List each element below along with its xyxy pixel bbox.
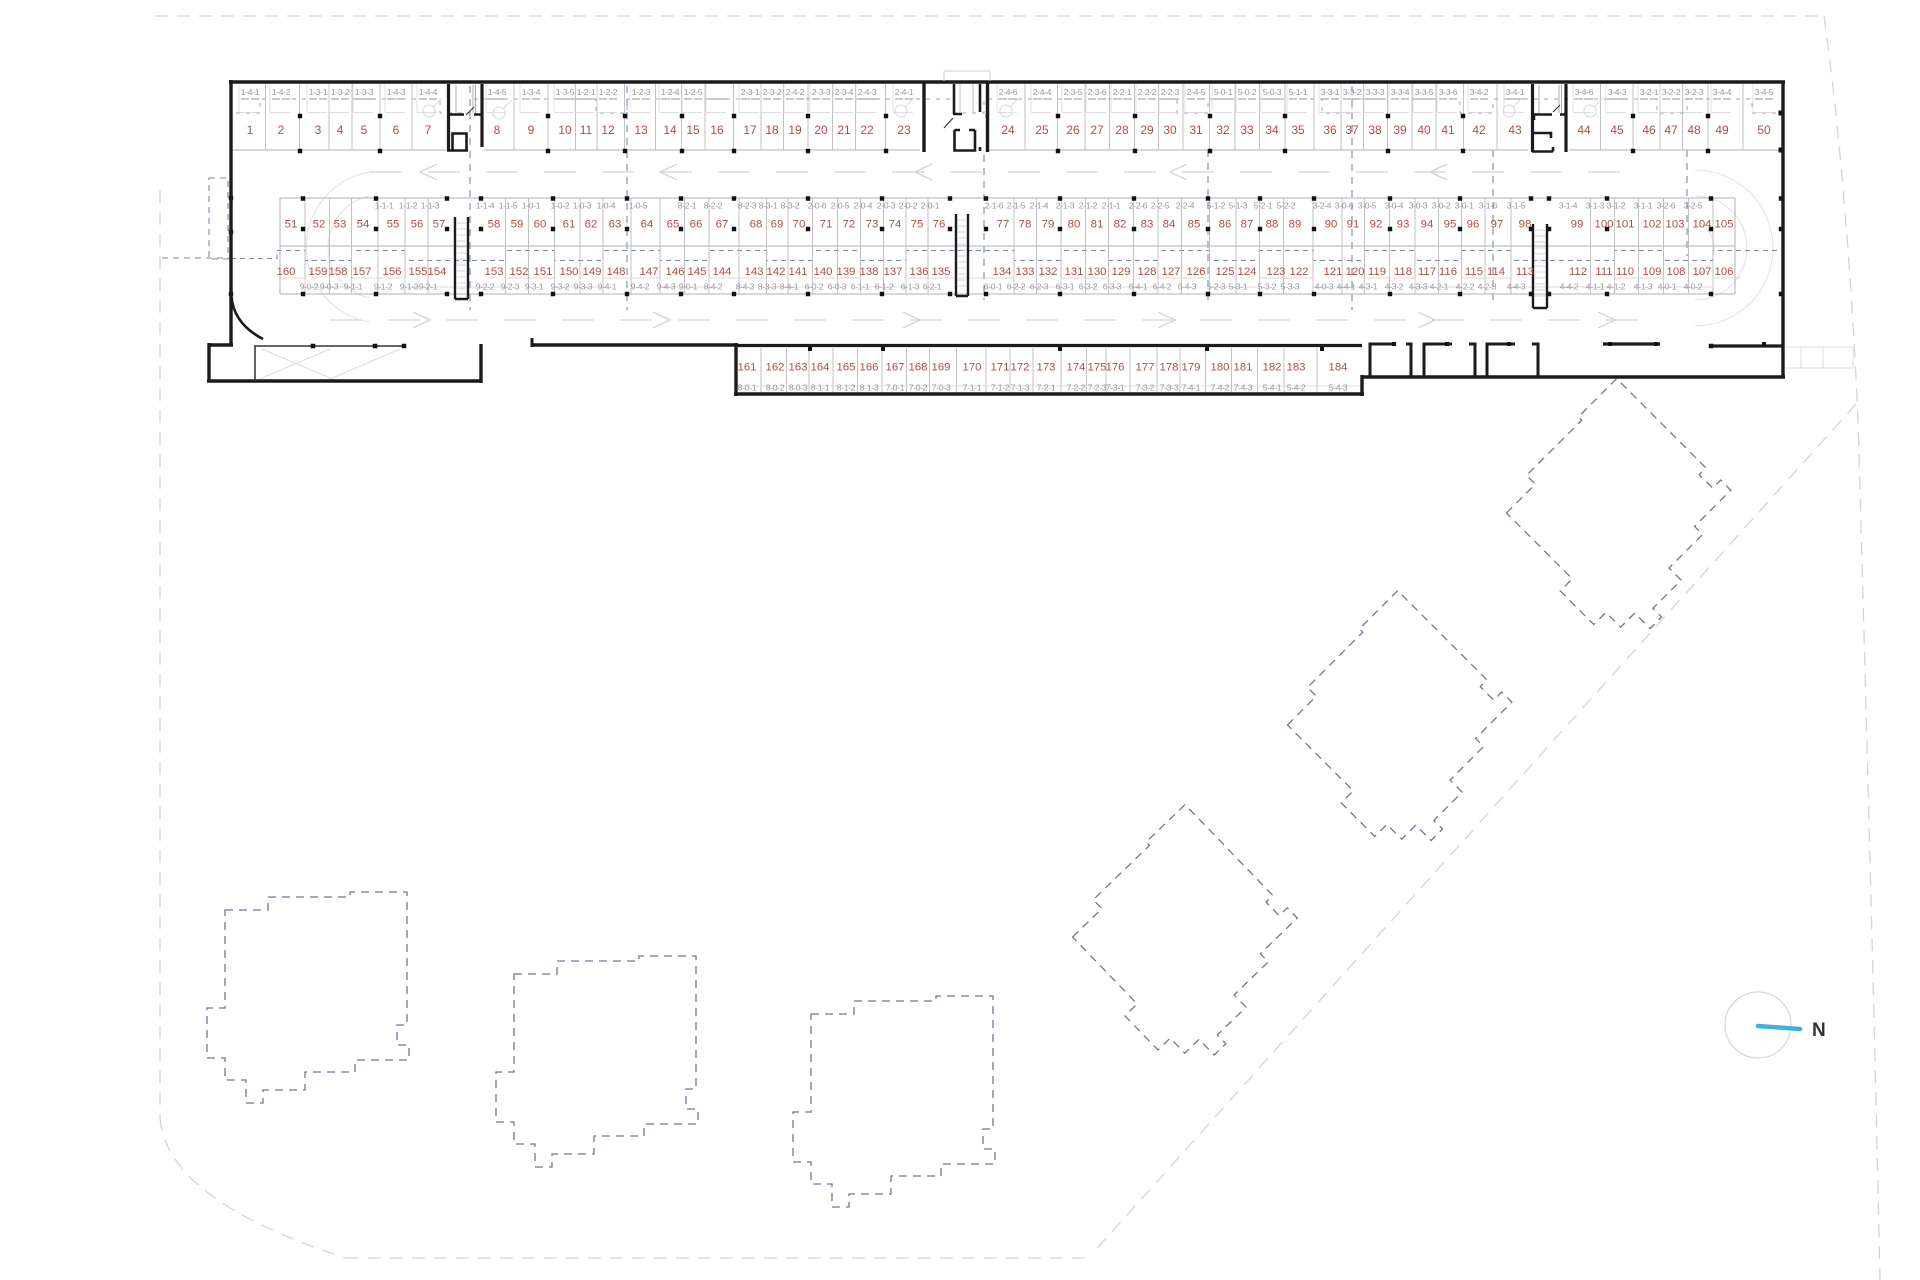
svg-text:2-3-4: 2-3-4 <box>835 87 854 97</box>
svg-text:4-3-2: 4-3-2 <box>1385 282 1404 292</box>
svg-text:49: 49 <box>1715 123 1729 137</box>
svg-text:9-1-3: 9-1-3 <box>400 282 419 292</box>
svg-text:4-1-2: 4-1-2 <box>1607 282 1626 292</box>
svg-text:132: 132 <box>1038 266 1057 278</box>
svg-text:7-1-1: 7-1-1 <box>963 383 982 393</box>
svg-text:15: 15 <box>686 123 700 137</box>
svg-text:3-1-3: 3-1-3 <box>1586 201 1605 211</box>
svg-text:129: 129 <box>1111 266 1130 278</box>
svg-text:3-2-5: 3-2-5 <box>1684 201 1703 211</box>
svg-text:1-0-5: 1-0-5 <box>629 201 648 211</box>
svg-text:2-3-1: 2-3-1 <box>741 87 760 97</box>
svg-text:6-0-3: 6-0-3 <box>828 282 847 292</box>
svg-text:8-2-2: 8-2-2 <box>704 201 723 211</box>
svg-text:37: 37 <box>1345 123 1359 137</box>
svg-text:8: 8 <box>494 123 501 137</box>
svg-text:19: 19 <box>788 123 802 137</box>
svg-text:1: 1 <box>247 123 254 137</box>
svg-text:152: 152 <box>509 266 528 278</box>
svg-text:7-2-2: 7-2-2 <box>1067 383 1086 393</box>
svg-text:1-1-2: 1-1-2 <box>399 201 418 211</box>
svg-text:125: 125 <box>1215 266 1234 278</box>
svg-text:1-4-3: 1-4-3 <box>387 87 406 97</box>
svg-text:141: 141 <box>788 266 807 278</box>
svg-text:123: 123 <box>1266 266 1285 278</box>
svg-text:2-1-5: 2-1-5 <box>1007 201 1026 211</box>
svg-text:2-0-6: 2-0-6 <box>808 201 827 211</box>
svg-text:4-0-3: 4-0-3 <box>1315 282 1334 292</box>
svg-text:59: 59 <box>511 218 524 230</box>
svg-text:2-0-2: 2-0-2 <box>899 201 918 211</box>
svg-text:81: 81 <box>1091 218 1104 230</box>
svg-text:2-2-2: 2-2-2 <box>1138 87 1157 97</box>
svg-text:61: 61 <box>563 218 576 230</box>
svg-text:3-2-1: 3-2-1 <box>1640 87 1659 97</box>
svg-text:62: 62 <box>585 218 598 230</box>
svg-text:105: 105 <box>1714 218 1733 230</box>
svg-text:100: 100 <box>1594 218 1613 230</box>
svg-text:1-2-4: 1-2-4 <box>661 87 680 97</box>
svg-text:5-2-1: 5-2-1 <box>1254 201 1273 211</box>
svg-text:117: 117 <box>1418 266 1436 278</box>
svg-text:7-3-3: 7-3-3 <box>1160 383 1179 393</box>
svg-text:23: 23 <box>897 123 911 137</box>
svg-text:56: 56 <box>411 218 424 230</box>
svg-text:124: 124 <box>1237 266 1256 278</box>
svg-text:16: 16 <box>710 123 724 137</box>
svg-text:1-3-3: 1-3-3 <box>355 87 374 97</box>
svg-text:8-0-3: 8-0-3 <box>789 383 808 393</box>
svg-text:153: 153 <box>484 266 503 278</box>
svg-text:110: 110 <box>1616 266 1634 278</box>
svg-text:4-4-1: 4-4-1 <box>1337 282 1356 292</box>
svg-text:7-2-1: 7-2-1 <box>1037 383 1056 393</box>
svg-text:22: 22 <box>860 123 874 137</box>
svg-text:3-3-5: 3-3-5 <box>1415 87 1434 97</box>
svg-text:8-0-1: 8-0-1 <box>738 383 757 393</box>
svg-text:45: 45 <box>1610 123 1624 137</box>
svg-text:57: 57 <box>433 218 446 230</box>
svg-text:181: 181 <box>1233 362 1252 374</box>
svg-text:115: 115 <box>1465 266 1483 278</box>
svg-text:139: 139 <box>836 266 855 278</box>
svg-text:170: 170 <box>962 362 981 374</box>
svg-text:3-2-2: 3-2-2 <box>1662 87 1681 97</box>
svg-text:128: 128 <box>1137 266 1156 278</box>
svg-text:36: 36 <box>1323 123 1337 137</box>
svg-text:158: 158 <box>328 266 347 278</box>
svg-text:182: 182 <box>1262 362 1281 374</box>
svg-text:143: 143 <box>744 266 763 278</box>
svg-text:38: 38 <box>1368 123 1382 137</box>
svg-text:109: 109 <box>1642 266 1661 278</box>
svg-text:94: 94 <box>1421 218 1434 230</box>
svg-text:9-2-3: 9-2-3 <box>501 282 520 292</box>
svg-text:1-1-3: 1-1-3 <box>421 201 440 211</box>
svg-text:3-3-1: 3-3-1 <box>1321 87 1340 97</box>
svg-text:2-4-2: 2-4-2 <box>786 87 805 97</box>
svg-text:6-1-3: 6-1-3 <box>901 282 920 292</box>
svg-text:122: 122 <box>1289 266 1308 278</box>
svg-text:24: 24 <box>1001 123 1015 137</box>
svg-text:5-0-2: 5-0-2 <box>1238 87 1257 97</box>
svg-text:114: 114 <box>1487 266 1505 278</box>
svg-text:3-0-5: 3-0-5 <box>1358 201 1377 211</box>
svg-text:9-3-1: 9-3-1 <box>525 282 544 292</box>
svg-text:7: 7 <box>425 123 432 137</box>
svg-text:2-1-1: 2-1-1 <box>1102 201 1121 211</box>
svg-text:77: 77 <box>997 218 1010 230</box>
svg-text:68: 68 <box>750 218 763 230</box>
svg-text:134: 134 <box>992 266 1011 278</box>
svg-text:82: 82 <box>1114 218 1127 230</box>
svg-text:1-4-1: 1-4-1 <box>241 87 260 97</box>
svg-text:42: 42 <box>1472 123 1486 137</box>
svg-text:2-1-4: 2-1-4 <box>1030 201 1049 211</box>
svg-text:164: 164 <box>810 362 829 374</box>
svg-text:1-2-2: 1-2-2 <box>599 87 618 97</box>
svg-text:60: 60 <box>534 218 547 230</box>
svg-text:5-0-1: 5-0-1 <box>1214 87 1233 97</box>
svg-text:5-2-2: 5-2-2 <box>1277 201 1296 211</box>
svg-text:101: 101 <box>1615 218 1634 230</box>
svg-text:85: 85 <box>1188 218 1201 230</box>
svg-text:119: 119 <box>1368 266 1386 278</box>
svg-text:83: 83 <box>1141 218 1154 230</box>
svg-text:90: 90 <box>1325 218 1338 230</box>
svg-text:163: 163 <box>788 362 807 374</box>
svg-text:20: 20 <box>814 123 828 137</box>
svg-text:6-2-2: 6-2-2 <box>1007 282 1026 292</box>
svg-text:9-3-2: 9-3-2 <box>551 282 570 292</box>
svg-text:2-1-6: 2-1-6 <box>985 201 1004 211</box>
svg-text:92: 92 <box>1370 218 1383 230</box>
svg-text:1-2-5: 1-2-5 <box>684 87 703 97</box>
svg-text:5-4-3: 5-4-3 <box>1329 383 1348 393</box>
svg-text:147: 147 <box>639 266 658 278</box>
svg-text:140: 140 <box>813 266 832 278</box>
svg-text:159: 159 <box>308 266 327 278</box>
svg-text:74: 74 <box>889 218 902 230</box>
svg-text:4-4-2: 4-4-2 <box>1560 282 1579 292</box>
svg-text:2-1-3: 2-1-3 <box>1056 201 1075 211</box>
svg-text:2-4-5: 2-4-5 <box>1187 87 1206 97</box>
svg-text:91: 91 <box>1347 218 1360 230</box>
svg-text:87: 87 <box>1241 218 1254 230</box>
svg-text:9-4-2: 9-4-2 <box>631 282 650 292</box>
svg-text:145: 145 <box>687 266 706 278</box>
svg-text:26: 26 <box>1066 123 1080 137</box>
svg-text:1-3-1: 1-3-1 <box>309 87 328 97</box>
svg-text:47: 47 <box>1664 123 1678 137</box>
svg-text:99: 99 <box>1571 218 1584 230</box>
svg-text:93: 93 <box>1397 218 1410 230</box>
svg-text:102: 102 <box>1642 218 1661 230</box>
svg-text:131: 131 <box>1064 266 1083 278</box>
svg-text:106: 106 <box>1714 266 1733 278</box>
svg-text:3-0-1: 3-0-1 <box>1455 201 1474 211</box>
svg-text:70: 70 <box>793 218 806 230</box>
svg-text:173: 173 <box>1036 362 1055 374</box>
svg-text:183: 183 <box>1286 362 1305 374</box>
svg-text:113: 113 <box>1516 266 1534 278</box>
svg-text:3-0-4: 3-0-4 <box>1385 201 1404 211</box>
svg-text:4-1-1: 4-1-1 <box>1586 282 1605 292</box>
svg-text:5-1-2: 5-1-2 <box>1207 201 1226 211</box>
svg-text:48: 48 <box>1687 123 1701 137</box>
svg-text:95: 95 <box>1444 218 1457 230</box>
svg-text:171: 171 <box>990 362 1009 374</box>
svg-text:17: 17 <box>743 123 757 137</box>
svg-text:180: 180 <box>1210 362 1229 374</box>
svg-text:4-1-3: 4-1-3 <box>1634 282 1653 292</box>
svg-text:7-1-3: 7-1-3 <box>1011 383 1030 393</box>
svg-text:1-4-5: 1-4-5 <box>488 87 507 97</box>
svg-text:162: 162 <box>765 362 784 374</box>
svg-text:9-2-1: 9-2-1 <box>419 282 438 292</box>
svg-text:112: 112 <box>1569 266 1587 278</box>
svg-text:6-4-3: 6-4-3 <box>1178 282 1197 292</box>
svg-text:118: 118 <box>1394 266 1412 278</box>
svg-text:3-4-3: 3-4-3 <box>1608 87 1627 97</box>
svg-text:27: 27 <box>1090 123 1104 137</box>
svg-text:130: 130 <box>1087 266 1106 278</box>
svg-text:2-2-6: 2-2-6 <box>1129 201 1148 211</box>
svg-text:7-4-3: 7-4-3 <box>1234 383 1253 393</box>
svg-text:N: N <box>1812 1020 1826 1041</box>
svg-text:58: 58 <box>488 218 501 230</box>
svg-text:2-3-6: 2-3-6 <box>1088 87 1107 97</box>
svg-text:2-2-4: 2-2-4 <box>1176 201 1195 211</box>
svg-text:7-0-2: 7-0-2 <box>909 383 928 393</box>
svg-text:1-1-5: 1-1-5 <box>499 201 518 211</box>
svg-text:50: 50 <box>1757 123 1771 137</box>
svg-text:25: 25 <box>1035 123 1049 137</box>
svg-text:72: 72 <box>843 218 856 230</box>
svg-text:69: 69 <box>771 218 784 230</box>
svg-text:2: 2 <box>278 123 285 137</box>
svg-text:8-1-2: 8-1-2 <box>837 383 856 393</box>
svg-text:9: 9 <box>528 123 535 137</box>
svg-text:175: 175 <box>1087 362 1106 374</box>
svg-text:4-4-3: 4-4-3 <box>1507 282 1526 292</box>
svg-text:4-2-3: 4-2-3 <box>1478 282 1497 292</box>
svg-text:3-3-6: 3-3-6 <box>1439 87 1458 97</box>
svg-text:169: 169 <box>931 362 950 374</box>
svg-text:8-1-3: 8-1-3 <box>860 383 879 393</box>
svg-text:6-4-1: 6-4-1 <box>1129 282 1148 292</box>
svg-text:2-3-2: 2-3-2 <box>763 87 782 97</box>
svg-text:1-0-3: 1-0-3 <box>573 201 592 211</box>
svg-text:7-1-2: 7-1-2 <box>991 383 1010 393</box>
svg-text:3-0-2: 3-0-2 <box>1432 201 1451 211</box>
svg-text:3-3-2: 3-3-2 <box>1343 87 1362 97</box>
svg-text:165: 165 <box>836 362 855 374</box>
svg-text:4-2-1: 4-2-1 <box>1430 282 1449 292</box>
svg-text:79: 79 <box>1042 218 1055 230</box>
svg-text:35: 35 <box>1291 123 1305 137</box>
svg-text:13: 13 <box>634 123 648 137</box>
svg-text:14: 14 <box>663 123 677 137</box>
svg-text:7-0-1: 7-0-1 <box>886 383 905 393</box>
svg-text:3-4-5: 3-4-5 <box>1755 87 1774 97</box>
svg-text:3-3-4: 3-3-4 <box>1391 87 1410 97</box>
svg-text:2-1-2: 2-1-2 <box>1079 201 1098 211</box>
svg-text:6-2-3: 6-2-3 <box>1030 282 1049 292</box>
svg-text:9-2-2: 9-2-2 <box>476 282 495 292</box>
svg-text:160: 160 <box>276 266 295 278</box>
svg-text:116: 116 <box>1439 266 1457 278</box>
svg-text:3: 3 <box>315 123 322 137</box>
svg-text:2-4-1: 2-4-1 <box>895 87 914 97</box>
svg-text:9-0-3: 9-0-3 <box>320 282 339 292</box>
svg-text:55: 55 <box>387 218 400 230</box>
svg-text:3-3-3: 3-3-3 <box>1366 87 1385 97</box>
svg-text:30: 30 <box>1163 123 1177 137</box>
svg-text:2-0-3: 2-0-3 <box>877 201 896 211</box>
svg-text:8-2-1: 8-2-1 <box>678 201 697 211</box>
svg-text:76: 76 <box>933 218 946 230</box>
svg-text:1-3-4: 1-3-4 <box>522 87 541 97</box>
svg-text:1-2-1: 1-2-1 <box>577 87 596 97</box>
svg-text:5-4-1: 5-4-1 <box>1263 383 1282 393</box>
svg-text:33: 33 <box>1240 123 1254 137</box>
svg-text:174: 174 <box>1066 362 1085 374</box>
svg-text:172: 172 <box>1010 362 1029 374</box>
svg-text:4-0-1: 4-0-1 <box>1658 282 1677 292</box>
svg-text:4: 4 <box>337 123 344 137</box>
svg-text:8-4-1: 8-4-1 <box>780 282 799 292</box>
svg-text:1-0-2: 1-0-2 <box>551 201 570 211</box>
svg-text:44: 44 <box>1577 123 1591 137</box>
svg-text:126: 126 <box>1186 266 1205 278</box>
svg-text:1-3-5: 1-3-5 <box>556 87 575 97</box>
svg-text:6-3-1: 6-3-1 <box>1056 282 1075 292</box>
svg-text:80: 80 <box>1068 218 1081 230</box>
svg-text:3-1-1: 3-1-1 <box>1634 201 1653 211</box>
svg-text:66: 66 <box>690 218 703 230</box>
svg-text:4-2-2: 4-2-2 <box>1456 282 1475 292</box>
svg-text:8-4-2: 8-4-2 <box>704 282 723 292</box>
svg-text:1-4-2: 1-4-2 <box>272 87 291 97</box>
svg-text:65: 65 <box>667 218 680 230</box>
svg-text:2-0-1: 2-0-1 <box>921 201 940 211</box>
svg-text:9-1-1: 9-1-1 <box>344 282 363 292</box>
svg-text:2-0-4: 2-0-4 <box>854 201 873 211</box>
svg-text:96: 96 <box>1467 218 1480 230</box>
svg-text:6-3-3: 6-3-3 <box>1103 282 1122 292</box>
svg-text:9-3-3: 9-3-3 <box>574 282 593 292</box>
svg-text:2-2-3: 2-2-3 <box>1161 87 1180 97</box>
svg-text:39: 39 <box>1393 123 1407 137</box>
svg-text:3-4-1: 3-4-1 <box>1506 87 1525 97</box>
svg-text:75: 75 <box>911 218 924 230</box>
svg-text:6-1-1: 6-1-1 <box>851 282 870 292</box>
svg-text:7-3-1: 7-3-1 <box>1106 383 1125 393</box>
svg-text:3-1-4: 3-1-4 <box>1559 201 1578 211</box>
svg-text:135: 135 <box>931 266 950 278</box>
svg-text:142: 142 <box>766 266 785 278</box>
svg-text:3-4-2: 3-4-2 <box>1470 87 1489 97</box>
svg-text:43: 43 <box>1508 123 1522 137</box>
svg-text:6-2-1: 6-2-1 <box>923 282 942 292</box>
svg-text:8-3-2: 8-3-2 <box>781 201 800 211</box>
svg-text:2-4-3: 2-4-3 <box>858 87 877 97</box>
svg-text:104: 104 <box>1692 218 1711 230</box>
svg-text:167: 167 <box>885 362 904 374</box>
svg-text:6: 6 <box>393 123 400 137</box>
svg-text:10: 10 <box>558 123 572 137</box>
svg-text:6-4-2: 6-4-2 <box>1153 282 1172 292</box>
svg-text:137: 137 <box>883 266 902 278</box>
svg-text:1-0-4: 1-0-4 <box>597 201 616 211</box>
svg-text:3-4-6: 3-4-6 <box>1575 87 1594 97</box>
svg-text:3-0-6: 3-0-6 <box>1335 201 1354 211</box>
svg-text:5-3-3: 5-3-3 <box>1281 282 1300 292</box>
svg-text:176: 176 <box>1105 362 1124 374</box>
svg-text:2-2-1: 2-2-1 <box>1113 87 1132 97</box>
svg-text:71: 71 <box>820 218 833 230</box>
svg-text:111: 111 <box>1595 266 1612 278</box>
svg-text:138: 138 <box>859 266 878 278</box>
svg-text:3-1-6: 3-1-6 <box>1479 201 1498 211</box>
svg-text:7-3-2: 7-3-2 <box>1136 383 1155 393</box>
svg-text:8-3-1: 8-3-1 <box>759 201 778 211</box>
svg-text:2-2-5: 2-2-5 <box>1151 201 1170 211</box>
svg-text:51: 51 <box>285 218 298 230</box>
svg-text:1-4-4: 1-4-4 <box>419 87 438 97</box>
svg-text:34: 34 <box>1265 123 1279 137</box>
svg-text:103: 103 <box>1665 218 1684 230</box>
svg-text:151: 151 <box>533 266 552 278</box>
svg-text:78: 78 <box>1019 218 1032 230</box>
svg-text:161: 161 <box>737 362 756 374</box>
svg-text:5: 5 <box>361 123 368 137</box>
svg-text:73: 73 <box>866 218 879 230</box>
svg-text:3-2-3: 3-2-3 <box>1685 87 1704 97</box>
svg-text:53: 53 <box>334 218 347 230</box>
svg-text:133: 133 <box>1015 266 1034 278</box>
svg-text:177: 177 <box>1135 362 1154 374</box>
svg-text:3-2-6: 3-2-6 <box>1657 201 1676 211</box>
svg-text:7-2-3: 7-2-3 <box>1088 383 1107 393</box>
svg-text:5-3-1: 5-3-1 <box>1229 282 1248 292</box>
svg-text:108: 108 <box>1666 266 1685 278</box>
svg-text:7-0-3: 7-0-3 <box>932 383 951 393</box>
svg-text:67: 67 <box>716 218 729 230</box>
svg-text:166: 166 <box>859 362 878 374</box>
svg-text:4-3-3: 4-3-3 <box>1409 282 1428 292</box>
svg-text:21: 21 <box>837 123 851 137</box>
svg-text:1-2-3: 1-2-3 <box>632 87 651 97</box>
svg-text:29: 29 <box>1140 123 1154 137</box>
svg-text:157: 157 <box>352 266 371 278</box>
svg-text:5-1-1: 5-1-1 <box>1289 87 1308 97</box>
svg-text:150: 150 <box>559 266 578 278</box>
svg-text:6-3-2: 6-3-2 <box>1079 282 1098 292</box>
svg-text:9-4-3: 9-4-3 <box>657 282 676 292</box>
svg-text:1-1-1: 1-1-1 <box>375 201 394 211</box>
svg-text:63: 63 <box>609 218 622 230</box>
svg-text:1-1-4: 1-1-4 <box>476 201 495 211</box>
svg-text:144: 144 <box>712 266 731 278</box>
svg-text:4-0-2: 4-0-2 <box>1684 282 1703 292</box>
svg-text:7-4-2: 7-4-2 <box>1211 383 1230 393</box>
svg-text:3-2-4: 3-2-4 <box>1313 201 1332 211</box>
svg-text:46: 46 <box>1642 123 1656 137</box>
svg-text:156: 156 <box>382 266 401 278</box>
svg-text:2-3-3: 2-3-3 <box>812 87 831 97</box>
